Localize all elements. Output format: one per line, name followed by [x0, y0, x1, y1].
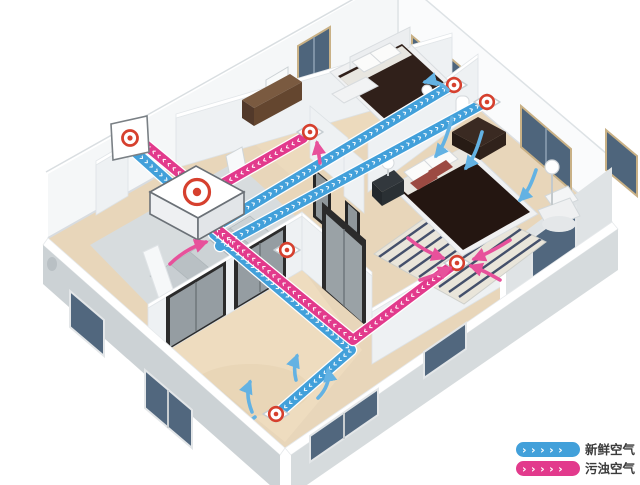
legend-fresh-label: 新鲜空气 [585, 442, 636, 457]
home-ventilation-diagram: ››››››››››››››››››››››››››››››››››››››››… [0, 0, 640, 485]
house-cutaway: ››››››››››››››››››››››››››››››››››››››››… [0, 0, 640, 485]
legend-fresh-item: ››››› 新鲜空气 [516, 442, 636, 457]
wall-fitting [47, 257, 57, 271]
legend-stale-chevrons-icon: ››››› [522, 463, 567, 476]
legend-stale-label: 污浊空气 [585, 461, 636, 476]
legend-fresh-chevrons-icon: ››››› [522, 444, 567, 457]
outdoor-vent-panel [111, 116, 149, 160]
legend-stale-item: ››››› 污浊空气 [516, 461, 636, 476]
